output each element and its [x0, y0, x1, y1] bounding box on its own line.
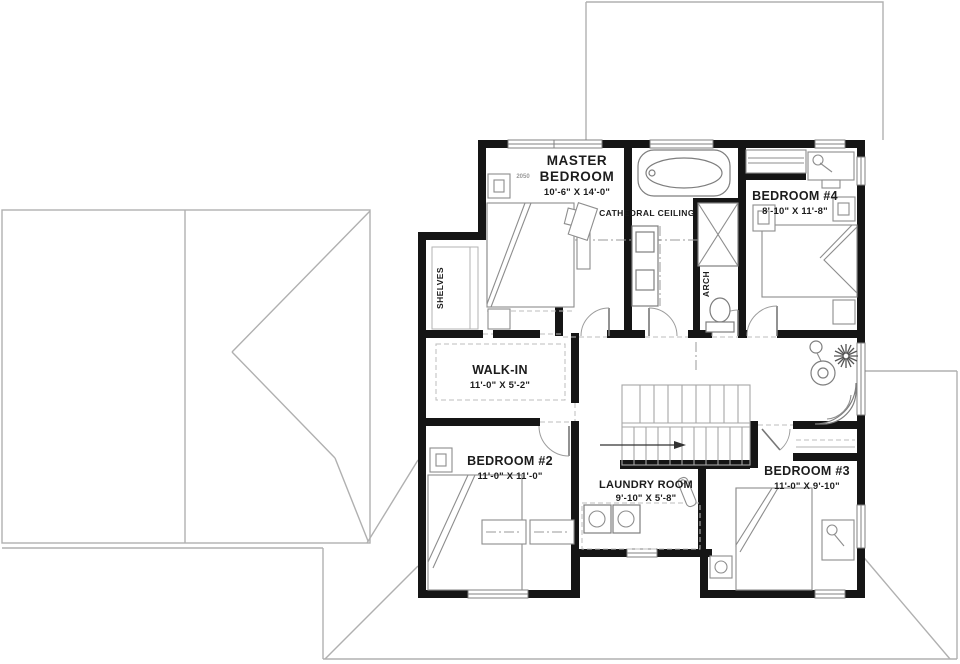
floor-plan: 2050 MASTER BEDROOM 10'-6" X 14'-0" CATH…	[0, 0, 960, 664]
bedroom4-dims: 8'-10" X 11'-8"	[762, 206, 828, 217]
window	[508, 140, 602, 148]
laundry-dims: 9'-10" X 5'-8"	[616, 493, 677, 504]
room-bedroom2: BEDROOM #2 11'-0" X 11'-0"	[428, 448, 574, 590]
nightstand-icon	[488, 309, 510, 329]
shelves-note: SHELVES	[435, 267, 445, 309]
window	[468, 590, 528, 598]
walkin-dims: 11'-0" X 5'-2"	[470, 380, 530, 391]
closet-icon	[746, 150, 806, 173]
bed-icon	[736, 488, 812, 590]
master-door	[581, 308, 609, 336]
dryer-icon	[613, 505, 640, 533]
window	[815, 140, 845, 148]
bedroom4-label: BEDROOM #4	[752, 189, 838, 203]
bedroom2-label: BEDROOM #2	[467, 454, 553, 468]
ensuite-bath: ARCH	[632, 150, 738, 332]
bedroom3-dims: 11'-0" X 9'-10"	[774, 481, 840, 492]
bed-icon	[762, 225, 857, 297]
closet-icon	[796, 440, 855, 447]
toilet-icon	[706, 298, 734, 332]
shower-icon	[698, 203, 738, 266]
dresser-icon	[530, 520, 574, 544]
bath-door	[649, 308, 677, 336]
nightstand-lamp-icon	[436, 454, 446, 466]
bathtub-icon	[638, 150, 730, 196]
bedroom2-dims: 11'-0" X 11'-0"	[477, 471, 542, 482]
window	[857, 157, 865, 185]
main-bath	[696, 341, 858, 424]
nightstand-lamp-icon	[494, 180, 504, 192]
laundry-label: LAUNDRY ROOM	[599, 479, 693, 491]
desk-icon	[822, 520, 854, 560]
master-bedroom-label: MASTER	[547, 153, 608, 168]
stairs	[600, 385, 750, 465]
nightstand-icon	[833, 300, 855, 324]
ceiling-fan-icon	[834, 344, 858, 368]
arch-note: ARCH	[701, 271, 711, 297]
window	[627, 549, 657, 557]
bedroom2-door	[539, 426, 569, 456]
window	[815, 590, 845, 598]
bedroom3-label: BEDROOM #3	[764, 464, 850, 478]
window	[857, 505, 865, 548]
desk-icon	[808, 152, 854, 188]
nightstand-icon	[710, 556, 732, 578]
window-size-tag: 2050	[516, 174, 530, 180]
window	[650, 140, 713, 148]
bedroom3-door	[762, 429, 790, 450]
vanity-icon	[632, 226, 660, 306]
shelves-closet: SHELVES	[432, 247, 478, 329]
nightstand-lamp-icon	[838, 203, 849, 215]
master-bedroom-label2: BEDROOM	[540, 169, 615, 184]
washer-icon	[584, 505, 611, 533]
floor-plan-drawing: 2050 MASTER BEDROOM 10'-6" X 14'-0" CATH…	[0, 0, 960, 664]
master-bedroom-dims: 10'-6" X 14'-0"	[544, 187, 610, 198]
window	[857, 343, 865, 415]
faucet-icon	[810, 341, 822, 353]
bedroom4-door	[747, 306, 777, 336]
corner-shower-icon	[815, 383, 856, 424]
bed-icon	[487, 203, 574, 311]
room-walkin: WALK-IN 11'-0" X 5'-2"	[436, 344, 565, 400]
dresser-icon	[482, 520, 526, 544]
cathedral-ceiling-note: CATHEDRAL CEILING	[599, 208, 695, 218]
room-laundry: LAUNDRY ROOM 9'-10" X 5'-8"	[582, 476, 700, 549]
walkin-label: WALK-IN	[472, 363, 528, 377]
stair-direction-arrow	[600, 441, 686, 449]
